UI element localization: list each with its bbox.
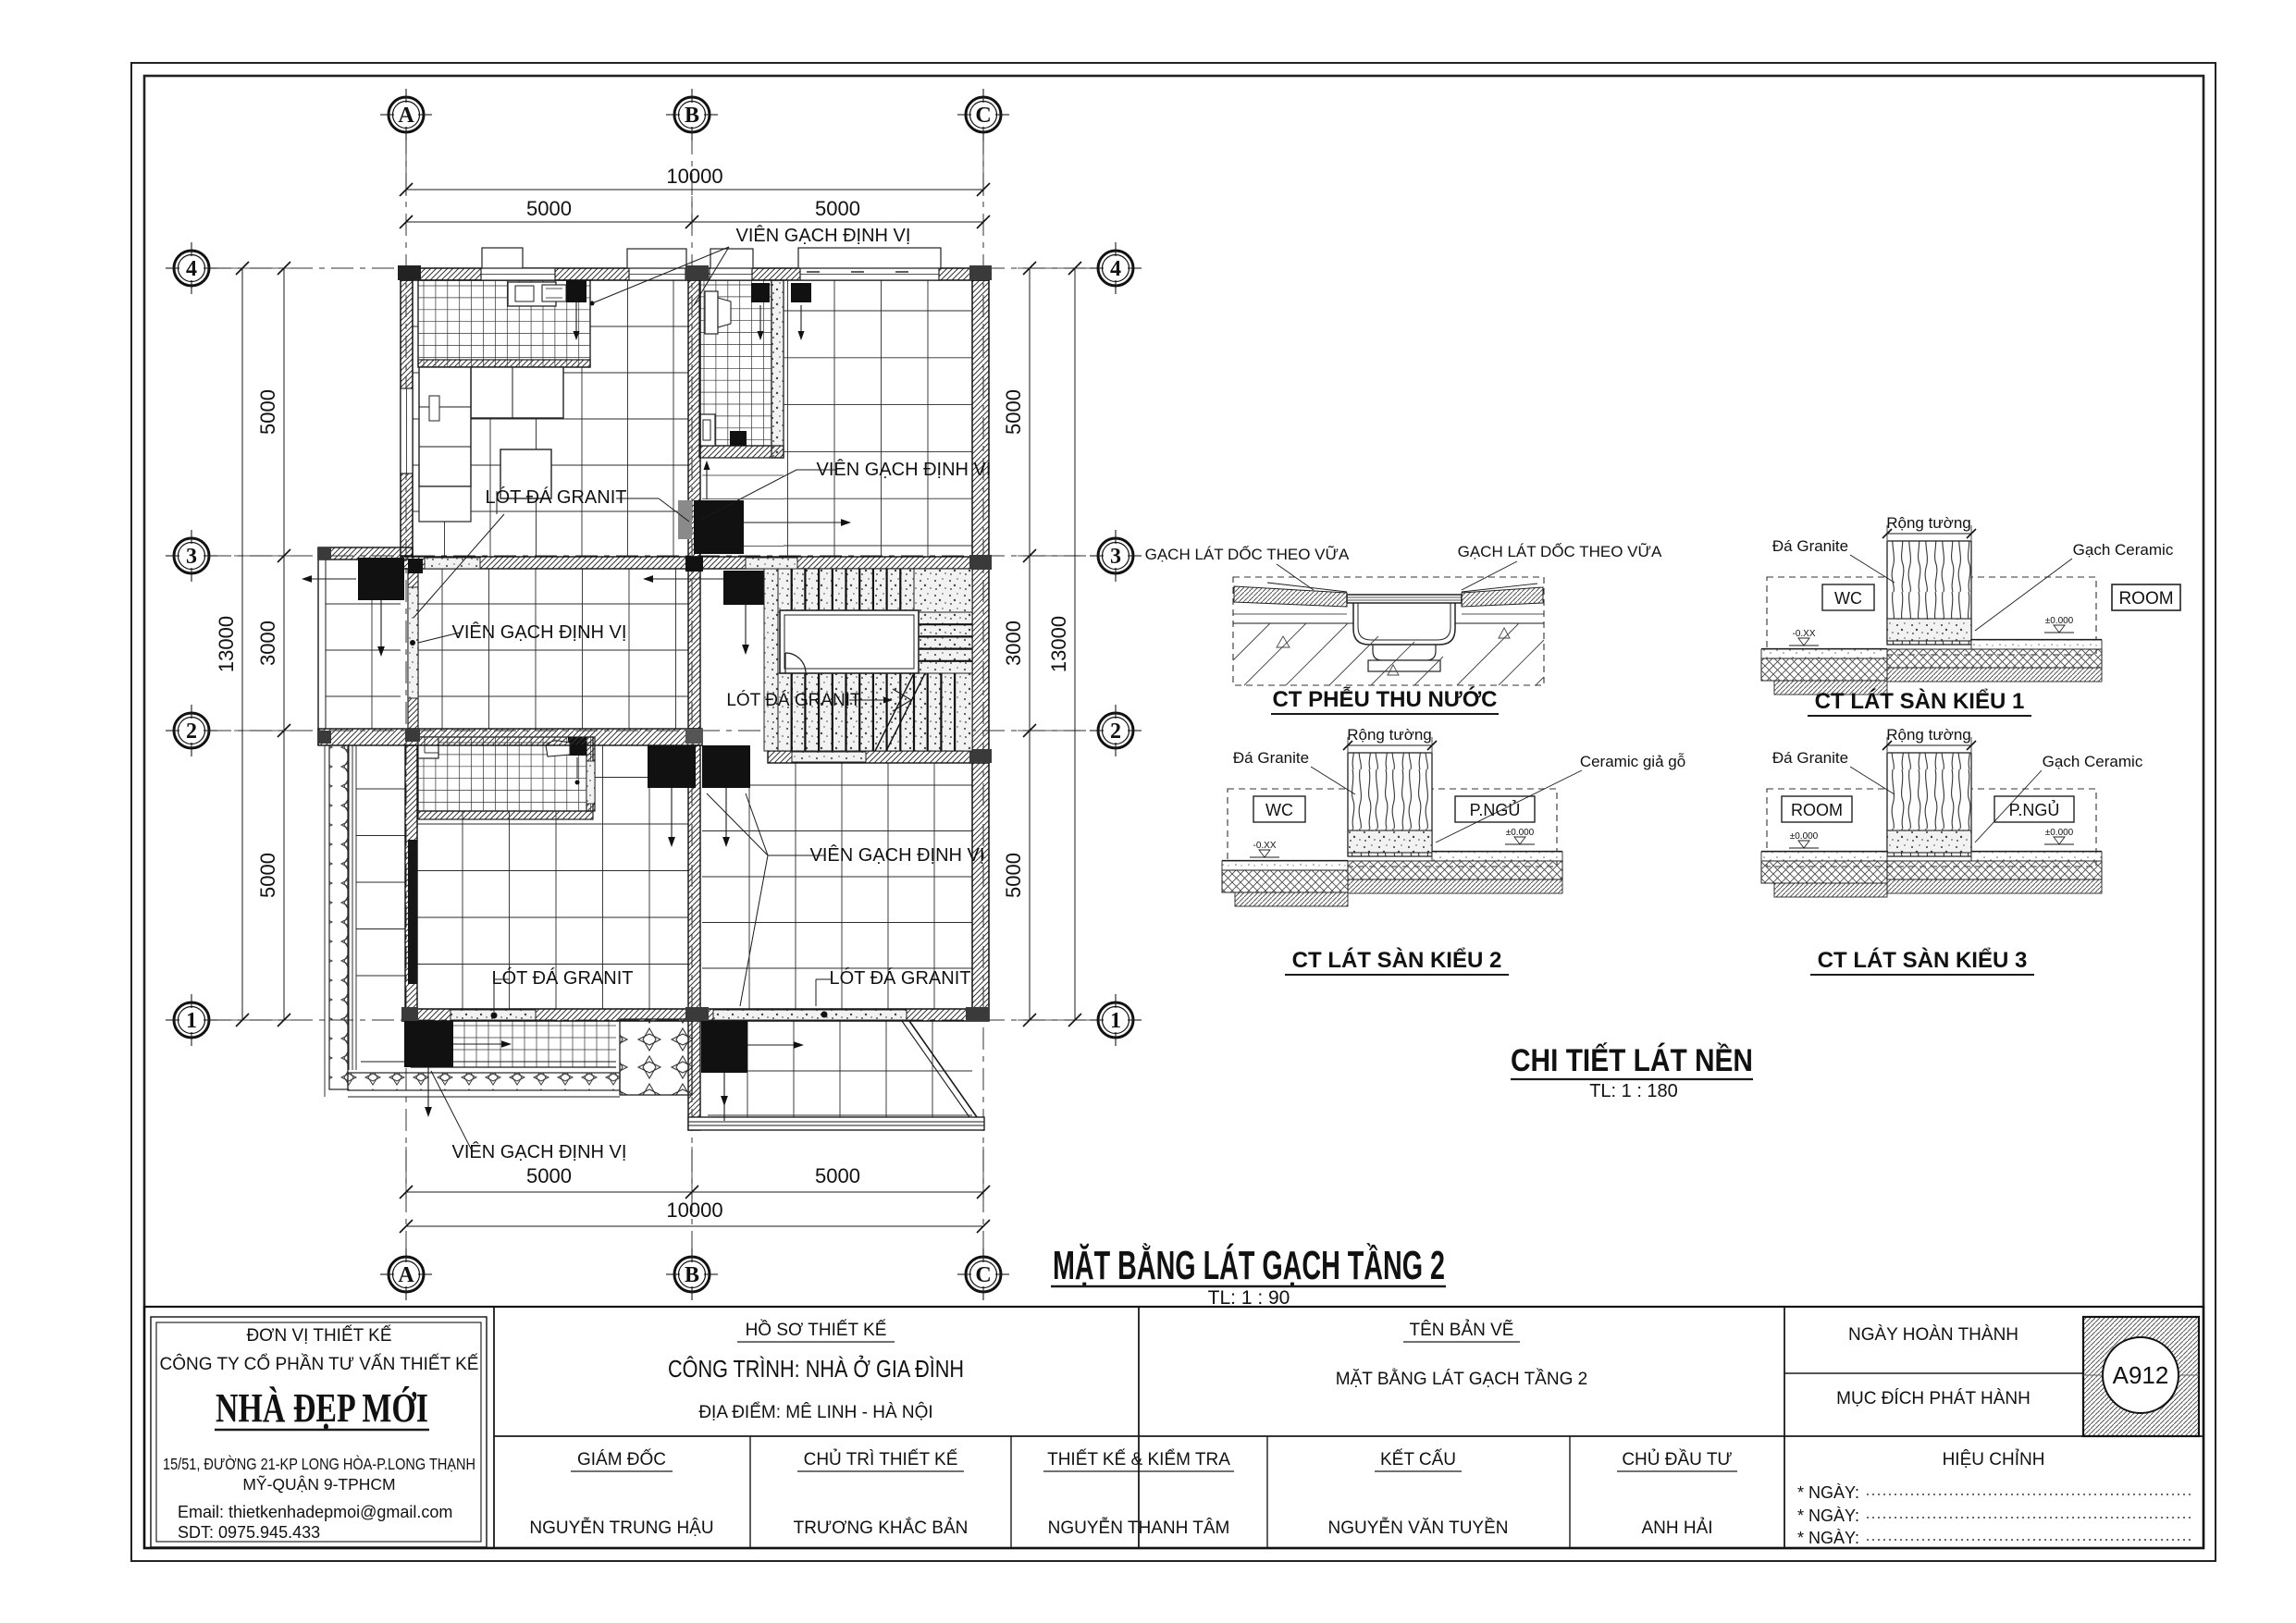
svg-text:3000: 3000	[1002, 621, 1025, 666]
svg-text:LÓT ĐÁ GRANIT: LÓT ĐÁ GRANIT	[492, 967, 634, 989]
svg-text:A912: A912	[2113, 1361, 2169, 1389]
svg-text:MỸ-QUẬN 9-TPHCM: MỸ-QUẬN 9-TPHCM	[242, 1474, 395, 1494]
svg-text:4: 4	[186, 257, 197, 281]
svg-text:Rộng tường: Rộng tường	[1886, 726, 1971, 744]
svg-text:5000: 5000	[1002, 853, 1025, 898]
svg-text:VIÊN GẠCH ĐỊNH VỊ: VIÊN GẠCH ĐỊNH VỊ	[736, 225, 911, 246]
svg-text:KẾT CẤU: KẾT CẤU	[1380, 1449, 1456, 1469]
svg-text:13000: 13000	[215, 616, 238, 672]
svg-text:LÓT ĐÁ GRANIT: LÓT ĐÁ GRANIT	[726, 690, 861, 710]
svg-text:1: 1	[186, 1009, 197, 1033]
svg-text:5000: 5000	[526, 1164, 572, 1187]
svg-text:CHI TIẾT LÁT NỀN: CHI TIẾT LÁT NỀN	[1511, 1043, 1753, 1078]
svg-text:13000: 13000	[1047, 616, 1070, 672]
svg-text:WC: WC	[1265, 801, 1293, 819]
svg-text:ĐƠN VỊ THIẾT KẾ: ĐƠN VỊ THIẾT KẾ	[246, 1325, 391, 1346]
svg-text:THIẾT KẾ & KIỂM TRA: THIẾT KẾ & KIỂM TRA	[1047, 1449, 1230, 1469]
svg-text:TL: 1 : 180: TL: 1 : 180	[1589, 1081, 1678, 1101]
svg-text:3: 3	[186, 545, 197, 569]
svg-text:Email: thietkenhadepmoi@gmail.: Email: thietkenhadepmoi@gmail.com	[178, 1503, 452, 1521]
svg-text:3000: 3000	[256, 621, 279, 666]
svg-text:TÊN BẢN VẼ: TÊN BẢN VẼ	[1410, 1320, 1514, 1340]
svg-text:Đá Granite: Đá Granite	[1772, 537, 1848, 555]
svg-text:B: B	[685, 104, 699, 128]
svg-text:WC: WC	[1834, 589, 1862, 608]
svg-text:NGUYỄN TRUNG HẬU: NGUYỄN TRUNG HẬU	[529, 1518, 713, 1538]
svg-text:5000: 5000	[1002, 389, 1025, 435]
svg-text:Gạch Ceramic: Gạch Ceramic	[2073, 541, 2174, 559]
svg-text:* NGÀY:: * NGÀY:	[1797, 1529, 1859, 1547]
svg-text:±0.000: ±0.000	[1790, 831, 1819, 842]
svg-text:VIÊN GẠCH ĐỊNH VỊ: VIÊN GẠCH ĐỊNH VỊ	[810, 844, 985, 866]
svg-text:5000: 5000	[526, 197, 572, 220]
svg-text:MẶT BẰNG LÁT GẠCH TẦNG 2: MẶT BẰNG LÁT GẠCH TẦNG 2	[1053, 1242, 1445, 1288]
svg-text:ROOM: ROOM	[2118, 589, 2173, 609]
svg-text:B: B	[685, 1263, 699, 1287]
svg-text:ROOM: ROOM	[1791, 801, 1843, 819]
svg-text:CHỦ TRÌ THIẾT KẾ: CHỦ TRÌ THIẾT KẾ	[804, 1449, 958, 1469]
svg-text:Đá Granite: Đá Granite	[1233, 749, 1309, 767]
svg-text:5000: 5000	[815, 197, 860, 220]
svg-text:A: A	[398, 104, 414, 128]
svg-text:-0.XX: -0.XX	[1792, 629, 1815, 639]
svg-text:5000: 5000	[256, 853, 279, 898]
svg-text:±0.000: ±0.000	[2045, 828, 2074, 838]
svg-text:NGÀY HOÀN THÀNH: NGÀY HOÀN THÀNH	[1848, 1325, 2018, 1345]
svg-text:-0.XX: -0.XX	[1253, 841, 1276, 851]
svg-text:VIÊN GẠCH ĐỊNH VỊ: VIÊN GẠCH ĐỊNH VỊ	[817, 459, 992, 480]
svg-text:NHÀ ĐẸP MỚI: NHÀ ĐẸP MỚI	[216, 1385, 428, 1431]
svg-text:ANH HẢI: ANH HẢI	[1641, 1518, 1712, 1538]
svg-text:LÓT ĐÁ GRANIT: LÓT ĐÁ GRANIT	[486, 486, 627, 508]
svg-text:SDT: 0975.945.433: SDT: 0975.945.433	[178, 1523, 320, 1542]
svg-text:P.NGỦ: P.NGỦ	[2009, 800, 2060, 819]
svg-text:MẶT BẰNG LÁT GẠCH TẦNG 2: MẶT BẰNG LÁT GẠCH TẦNG 2	[1336, 1369, 1587, 1389]
svg-text:TRƯƠNG KHẮC BẢN: TRƯƠNG KHẮC BẢN	[794, 1518, 969, 1538]
svg-text:HỒ SƠ THIẾT KẾ: HỒ SƠ THIẾT KẾ	[746, 1320, 887, 1340]
svg-text:Rộng tường: Rộng tường	[1347, 726, 1432, 744]
svg-text:10000: 10000	[666, 1199, 722, 1222]
svg-text:CHỦ ĐẦU TƯ: CHỦ ĐẦU TƯ	[1622, 1449, 1732, 1469]
svg-text:Ceramic giả gỗ: Ceramic giả gỗ	[1580, 753, 1685, 770]
svg-text:CT LÁT SÀN KIỂU 3: CT LÁT SÀN KIỂU 3	[1818, 947, 2028, 973]
svg-text:CT PHỄU THU NƯỚC: CT PHỄU THU NƯỚC	[1272, 685, 1497, 712]
svg-text:VIÊN GẠCH ĐỊNH VỊ: VIÊN GẠCH ĐỊNH VỊ	[452, 1141, 627, 1162]
svg-text:NGUYỄN VĂN TUYỀN: NGUYỄN VĂN TUYỀN	[1328, 1518, 1509, 1538]
svg-text:CÔNG TY CỔ PHẦN TƯ VẤN THIẾT K: CÔNG TY CỔ PHẦN TƯ VẤN THIẾT KẾ	[160, 1354, 479, 1374]
svg-text:Rộng tường: Rộng tường	[1886, 514, 1971, 532]
svg-text:Gạch Ceramic: Gạch Ceramic	[2043, 753, 2143, 770]
svg-text:TL: 1 : 90: TL: 1 : 90	[1208, 1287, 1290, 1309]
svg-text:VIÊN GẠCH ĐỊNH VỊ: VIÊN GẠCH ĐỊNH VỊ	[452, 621, 627, 643]
svg-text:5000: 5000	[256, 389, 279, 435]
svg-text:* NGÀY:: * NGÀY:	[1797, 1506, 1859, 1525]
svg-text:1: 1	[1110, 1009, 1121, 1033]
svg-text:LÓT ĐÁ GRANIT: LÓT ĐÁ GRANIT	[830, 967, 971, 989]
svg-text:CT LÁT SÀN KIỂU 2: CT LÁT SÀN KIỂU 2	[1292, 947, 1502, 973]
svg-text:4: 4	[1110, 257, 1121, 281]
svg-text:HIỆU CHỈNH: HIỆU CHỈNH	[1943, 1449, 2045, 1469]
svg-text:C: C	[975, 1263, 991, 1287]
svg-text:2: 2	[1110, 719, 1121, 744]
svg-text:CÔNG TRÌNH: NHÀ Ở GIA ĐÌNH: CÔNG TRÌNH: NHÀ Ở GIA ĐÌNH	[668, 1354, 964, 1383]
svg-text:ĐỊA ĐIỂM: MÊ LINH - HÀ NỘI: ĐỊA ĐIỂM: MÊ LINH - HÀ NỘI	[698, 1402, 932, 1422]
svg-text:P.NGỦ: P.NGỦ	[1470, 800, 1521, 819]
svg-text:GIÁM ĐỐC: GIÁM ĐỐC	[577, 1449, 666, 1469]
svg-text:10000: 10000	[666, 165, 722, 188]
svg-text:NGUYỄN THANH TÂM: NGUYỄN THANH TÂM	[1048, 1518, 1230, 1538]
svg-text:GẠCH LÁT DỐC THEO VỮA: GẠCH LÁT DỐC THEO VỮA	[1458, 542, 1662, 560]
svg-text:* NGÀY:: * NGÀY:	[1797, 1483, 1859, 1502]
svg-text:Đá Granite: Đá Granite	[1772, 749, 1848, 767]
svg-text:C: C	[975, 104, 991, 128]
svg-text:MỤC ĐÍCH PHÁT HÀNH: MỤC ĐÍCH PHÁT HÀNH	[1836, 1389, 2031, 1408]
svg-text:CT LÁT SÀN KIỂU 1: CT LÁT SÀN KIỂU 1	[1815, 688, 2025, 714]
svg-text:2: 2	[186, 719, 197, 744]
svg-text:A: A	[398, 1263, 414, 1287]
svg-text:±0.000: ±0.000	[1506, 828, 1535, 838]
svg-text:3: 3	[1110, 545, 1121, 569]
svg-text:±0.000: ±0.000	[2045, 616, 2074, 626]
svg-text:5000: 5000	[815, 1164, 860, 1187]
svg-text:15/51, ĐƯỜNG 21-KP LONG HÒA-P.: 15/51, ĐƯỜNG 21-KP LONG HÒA-P.LONG THẠNH	[163, 1454, 475, 1473]
svg-text:GẠCH LÁT DỐC THEO VỮA: GẠCH LÁT DỐC THEO VỮA	[1145, 545, 1350, 563]
